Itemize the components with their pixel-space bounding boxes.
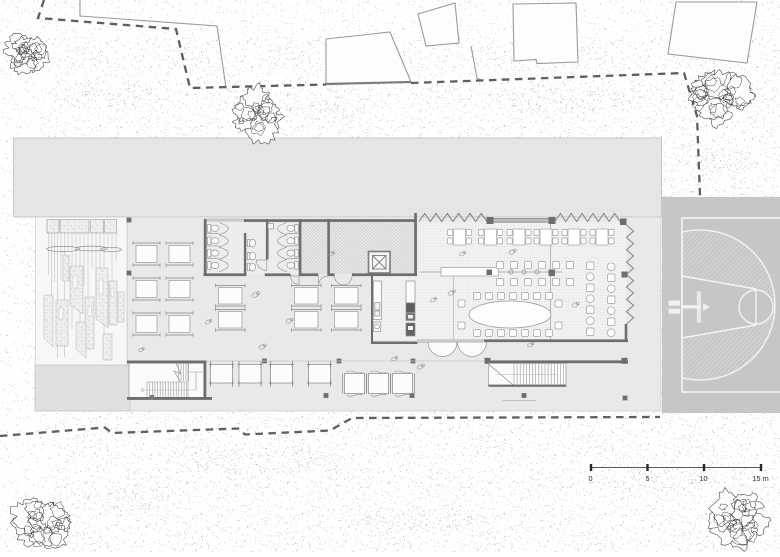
svg-text:10: 10: [700, 474, 708, 483]
svg-text:15 m: 15 m: [753, 474, 769, 483]
svg-text:0: 0: [589, 474, 593, 483]
svg-text:5: 5: [646, 474, 650, 483]
